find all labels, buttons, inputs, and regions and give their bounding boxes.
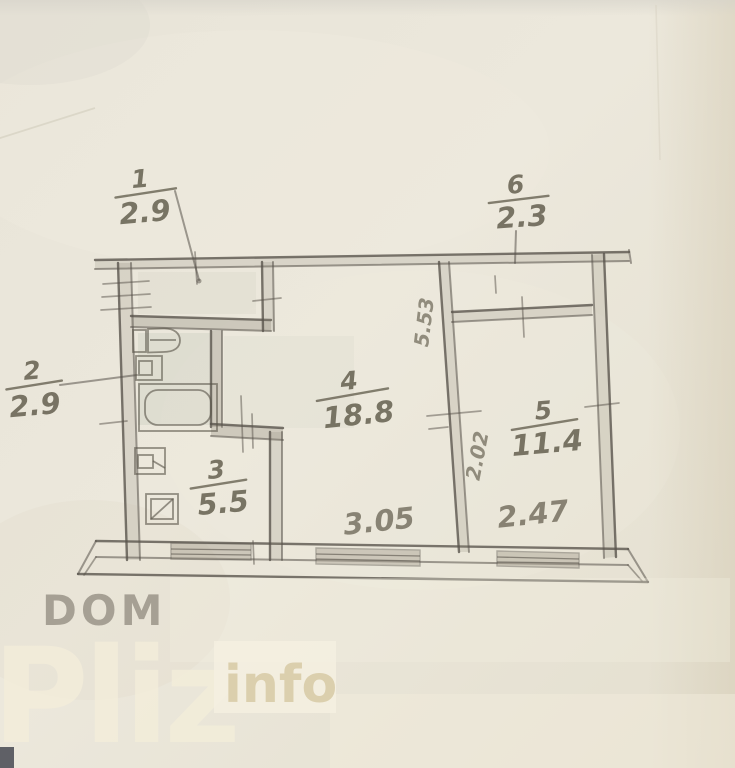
kitchen-right-wall (270, 432, 282, 560)
room-number: 6 (506, 170, 525, 200)
room-area: 2.3 (495, 198, 549, 236)
window-bedroom (497, 551, 579, 568)
window-living (316, 548, 420, 566)
scanned-floor-plan: 1 2.9 6 2.3 2 2.9 4 18.8 5 11.4 3 5.5 (0, 0, 735, 768)
paper-top-shade (0, 0, 735, 16)
room-area: 2.9 (118, 193, 172, 231)
window-glass (316, 548, 420, 566)
room-number: 1 (130, 164, 150, 194)
room-number: 4 (338, 366, 359, 397)
window-kitchen (171, 543, 251, 560)
window-jamb-tick (253, 541, 254, 564)
floor-plan-svg: 1 2.9 6 2.3 2 2.9 4 18.8 5 11.4 3 5.5 (0, 0, 735, 768)
stove-fixture (146, 494, 178, 524)
room-area: 2.9 (8, 386, 62, 424)
room-number: 2 (22, 355, 42, 385)
window-glass (171, 543, 251, 560)
wall-line (273, 262, 274, 331)
kitchen-door-jamb (252, 414, 253, 448)
window-glass (497, 551, 579, 568)
watermark-pliz: Pliz (0, 620, 236, 768)
wall-fill (270, 432, 282, 560)
hall-right-wall (262, 262, 274, 331)
room-number: 3 (206, 455, 226, 485)
room-area: 5.5 (196, 484, 250, 522)
watermark-light-band (330, 694, 735, 768)
corner-mark (0, 747, 14, 768)
room-area: 11.4 (510, 423, 584, 463)
room-number: 5 (533, 395, 553, 425)
leader-room-6 (515, 231, 516, 263)
closet-divider-tick (495, 276, 496, 293)
wall-line (262, 262, 263, 331)
watermark-info: info (224, 655, 337, 715)
leader-room-1-end (197, 279, 202, 284)
